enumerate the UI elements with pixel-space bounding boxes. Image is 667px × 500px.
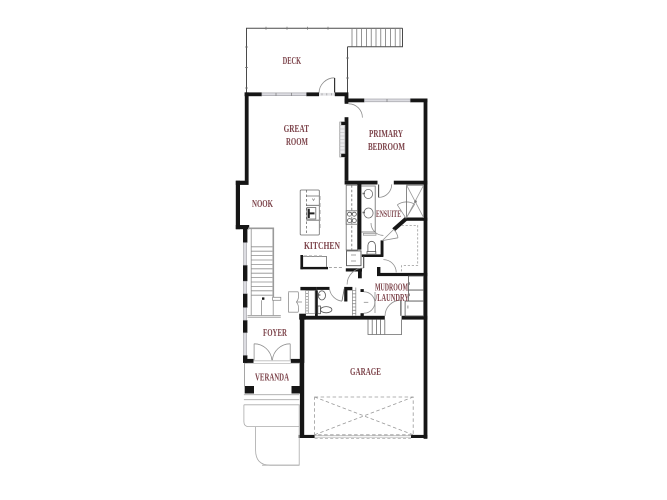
svg-text:MUDROOM: MUDROOM [375,283,408,294]
svg-text:KITCHEN: KITCHEN [304,241,341,252]
svg-text:BEDROOM: BEDROOM [368,142,405,153]
svg-text:VERANDA: VERANDA [255,372,290,383]
svg-text:ROOM: ROOM [286,137,308,148]
svg-text:PRIMARY: PRIMARY [369,129,404,140]
svg-text:GARAGE: GARAGE [350,366,381,378]
svg-text:/LAUNDRY: /LAUNDRY [375,293,410,304]
svg-text:ENSUITE: ENSUITE [376,209,401,219]
svg-text:FOYER: FOYER [263,328,288,339]
svg-text:NOOK: NOOK [252,199,273,210]
svg-text:DECK: DECK [283,56,302,67]
svg-text:GREAT: GREAT [284,124,310,135]
